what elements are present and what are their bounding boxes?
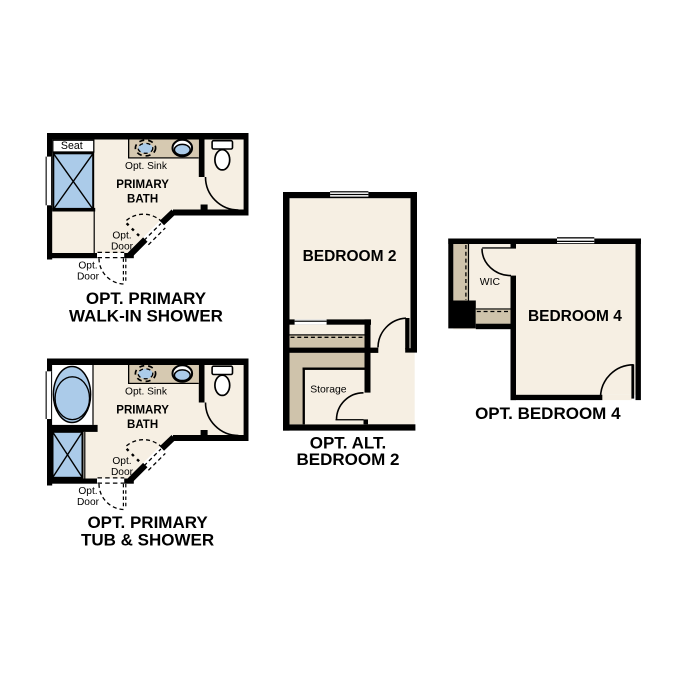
svg-text:BEDROOM 4: BEDROOM 4 <box>528 308 622 325</box>
svg-text:OPT. BEDROOM 4: OPT. BEDROOM 4 <box>475 404 621 423</box>
svg-text:BEDROOM 2: BEDROOM 2 <box>297 450 400 469</box>
svg-text:Storage: Storage <box>310 385 347 396</box>
svg-text:BEDROOM 2: BEDROOM 2 <box>303 248 397 265</box>
svg-text:Seat: Seat <box>61 140 83 152</box>
svg-text:OPT. PRIMARY: OPT. PRIMARY <box>87 513 208 532</box>
svg-text:WIC: WIC <box>480 277 501 288</box>
svg-text:WALK-IN SHOWER: WALK-IN SHOWER <box>69 307 223 326</box>
svg-text:OPT. PRIMARY: OPT. PRIMARY <box>86 289 207 308</box>
svg-text:TUB & SHOWER: TUB & SHOWER <box>81 531 214 550</box>
